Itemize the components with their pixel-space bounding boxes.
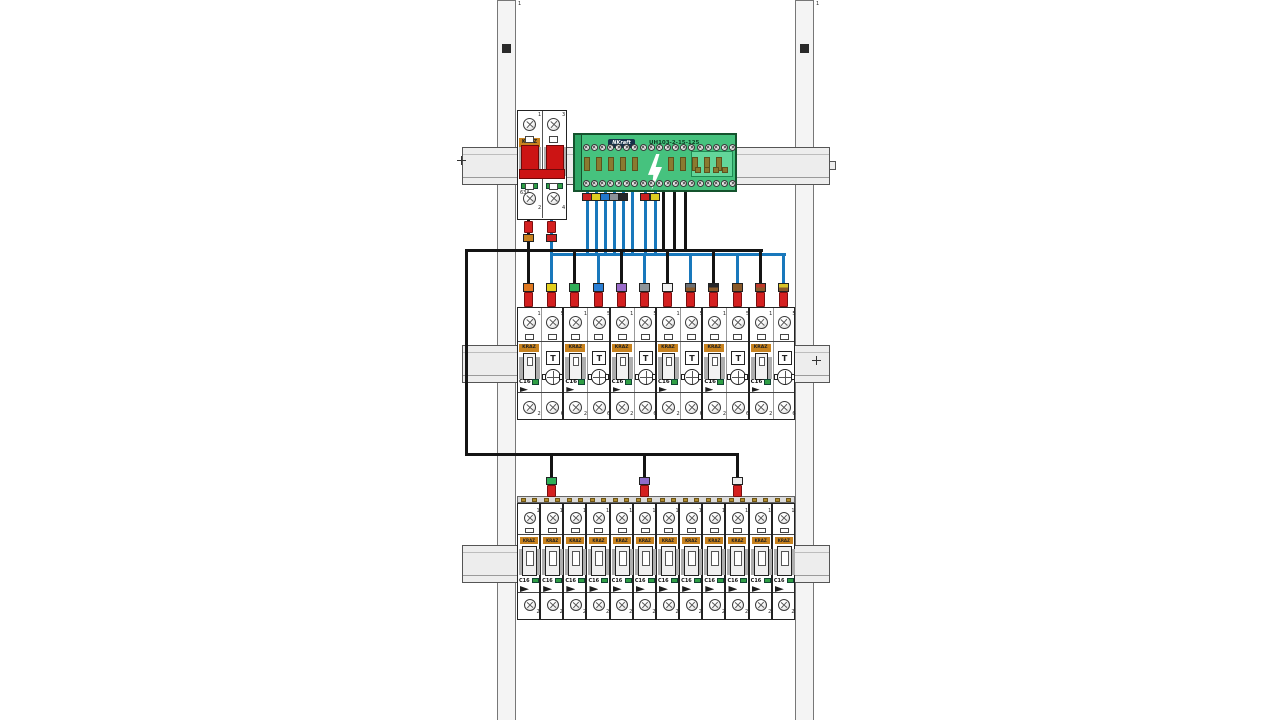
busbar-tooth — [763, 498, 768, 502]
module-divider — [587, 308, 588, 419]
terminal-number: 1 — [723, 312, 729, 318]
terminal-seam — [634, 592, 655, 593]
terminal-number: 1 — [538, 312, 544, 318]
wire-segment — [595, 192, 598, 256]
rcbo-unit: 1526KRAZC16T — [656, 307, 702, 420]
clamp-window — [525, 528, 534, 533]
breaker-toggle-handle[interactable] — [638, 546, 653, 576]
screw-terminal-icon — [547, 512, 559, 524]
wire-segment — [684, 192, 687, 252]
handle-notch — [712, 357, 718, 366]
block-output-tag — [618, 193, 628, 201]
block-clamp-slot — [680, 157, 686, 171]
rcbo-unit: 1526KRAZC16T — [563, 307, 609, 420]
wire-marker-tag — [546, 234, 557, 242]
dial-nub — [791, 374, 795, 380]
breaker-handle-frame — [582, 357, 586, 379]
ferrule-crimp — [640, 292, 649, 307]
test-button[interactable]: T — [685, 351, 699, 365]
screw-terminal-icon — [639, 599, 651, 611]
screw-terminal-icon — [755, 599, 767, 611]
ferrule-crimp — [756, 292, 765, 307]
terminal-seam — [657, 341, 701, 342]
block-clamp-slot — [704, 167, 710, 173]
breaker-toggle-handle[interactable] — [523, 353, 536, 380]
block-screw-terminal-icon — [729, 180, 736, 187]
terminal-number: 1 — [630, 312, 636, 318]
busbar-tooth — [660, 498, 665, 502]
block-screw-terminal-icon — [607, 180, 614, 187]
clamp-window — [710, 528, 719, 533]
mcb-unit: 12KRAZC16 — [679, 503, 702, 620]
terminal-number: 2 — [676, 412, 682, 418]
clamp-window — [548, 334, 557, 340]
block-clamp-slot — [596, 157, 602, 171]
block-screw-terminal-icon — [599, 180, 606, 187]
indicator-window — [717, 379, 724, 385]
brand-logo: KRAZ — [658, 344, 678, 352]
busbar-tooth — [740, 498, 745, 502]
mcb-unit: 12KRAZC16 — [563, 503, 586, 620]
row1-terminal-tag — [778, 283, 789, 292]
busbar-tooth — [671, 498, 676, 502]
mounting-cross-mark — [816, 356, 817, 365]
screw-terminal-icon — [663, 599, 675, 611]
terminal-seam — [634, 534, 655, 535]
rating-label: C16 — [612, 379, 624, 385]
row1-terminal-tag — [593, 283, 604, 292]
test-button[interactable]: T — [778, 351, 792, 365]
terminal-seam — [611, 534, 632, 535]
block-clamp-slot — [608, 157, 614, 171]
test-button[interactable]: T — [731, 351, 745, 365]
breaker-toggle-handle[interactable] — [777, 546, 792, 576]
busbar-tooth — [544, 498, 549, 502]
clamp-window — [664, 528, 673, 533]
block-screw-terminal-icon — [591, 180, 598, 187]
terminal-seam — [657, 392, 701, 393]
block-screw-terminal-icon — [583, 180, 590, 187]
rating-label: C16 — [704, 379, 716, 385]
rating-label: C16 — [565, 578, 577, 584]
wire-segment — [689, 253, 692, 287]
row2-feed-tag — [639, 477, 650, 485]
handle-notch — [711, 551, 719, 566]
terminal-seam — [680, 592, 701, 593]
terminal-seam — [726, 592, 747, 593]
clamp-window — [733, 528, 742, 533]
screw-terminal-icon — [755, 512, 767, 524]
terminal-seam — [703, 592, 724, 593]
brand-logo: KRAZ — [613, 537, 631, 544]
dial-nub — [774, 374, 778, 380]
screw-terminal-icon — [778, 512, 790, 524]
block-screw-terminal-icon — [583, 144, 590, 151]
busbar-tooth — [601, 498, 606, 502]
indicator-window — [601, 578, 608, 583]
clamp-window — [594, 334, 603, 340]
rating-label: C16 — [519, 379, 531, 385]
module-divider — [634, 308, 635, 419]
screw-terminal-icon — [569, 316, 582, 329]
handle-notch — [573, 357, 579, 366]
block-screw-terminal-icon — [713, 144, 720, 151]
block-screw-terminal-icon — [631, 144, 638, 151]
busbar-tooth — [636, 498, 641, 502]
breaker-toggle-handle[interactable] — [754, 546, 769, 576]
terminal-seam — [564, 392, 608, 393]
rail-hole — [800, 44, 809, 53]
block-screw-terminal-icon — [705, 180, 712, 187]
breaker-toggle-handle[interactable] — [661, 546, 676, 576]
ferrule-crimp — [594, 292, 603, 307]
rating-label: C16 — [751, 578, 763, 584]
block-screw-terminal-icon — [680, 180, 687, 187]
breaker-toggle-handle[interactable] — [730, 546, 745, 576]
clamp-window — [549, 183, 558, 190]
busbar-tooth — [683, 498, 688, 502]
busbar-tooth — [555, 498, 560, 502]
rating-label: C16 — [751, 379, 763, 385]
block-screw-terminal-icon — [721, 144, 728, 151]
screw-terminal-icon — [685, 401, 698, 414]
mcb-unit: 12KRAZC16 — [633, 503, 656, 620]
block-screw-terminal-icon — [599, 144, 606, 151]
brand-logo: KRAZ — [566, 537, 584, 544]
panel-layout: 1 1 13241526KRAZC16T1526KRAZC16T1526KRAZ… — [0, 0, 1280, 720]
screw-terminal-icon — [709, 512, 721, 524]
screw-terminal-icon — [732, 599, 744, 611]
clamp-window — [641, 528, 650, 533]
block-screw-terminal-icon — [648, 180, 655, 187]
breaker-handle-frame — [675, 357, 679, 379]
handle-notch — [642, 551, 650, 566]
terminal-seam — [518, 392, 562, 393]
breaker-toggle-handle[interactable] — [708, 353, 721, 380]
screw-terminal-icon — [755, 316, 768, 329]
screw-terminal-icon — [547, 599, 559, 611]
terminal-seam — [541, 534, 562, 535]
clamp-window — [525, 183, 534, 190]
wire-segment — [604, 192, 607, 256]
block-screw-terminal-icon — [672, 180, 679, 187]
block-clamp-slot — [632, 157, 638, 171]
indicator-window — [648, 578, 655, 583]
wire-segment — [622, 192, 625, 256]
indicator-window — [625, 379, 632, 385]
mcb-unit: 12KRAZC16 — [656, 503, 679, 620]
indicator-window — [532, 379, 539, 385]
handle-notch — [665, 551, 673, 566]
wire-segment — [643, 253, 646, 287]
breaker-toggle-handle[interactable] — [707, 546, 722, 576]
block-screw-terminal-icon — [664, 144, 671, 151]
screw-terminal-icon — [547, 192, 560, 205]
dial-nub — [681, 374, 685, 380]
row1-terminal-tag — [732, 283, 743, 292]
block-screw-terminal-icon — [640, 180, 647, 187]
breaker-toggle-handle[interactable] — [522, 546, 537, 576]
indicator-window — [694, 578, 701, 583]
block-screw-terminal-icon — [607, 144, 614, 151]
mcb-unit: 12KRAZC16 — [586, 503, 609, 620]
terminal-seam — [564, 341, 608, 342]
breaker-toggle-handle[interactable] — [569, 353, 582, 380]
brand-logo: KRAZ — [519, 344, 539, 352]
terminal-seam — [611, 341, 655, 342]
handle-notch — [526, 551, 534, 566]
block-screw-terminal-icon — [640, 144, 647, 151]
row1-terminal-tag — [708, 283, 719, 292]
clamp-window — [618, 334, 627, 340]
brand-logo: KRAZ — [612, 344, 632, 352]
screw-terminal-icon — [547, 118, 560, 131]
wire-segment — [654, 192, 657, 256]
terminal-seam — [518, 592, 539, 593]
breaker-toggle-handle[interactable] — [615, 546, 630, 576]
breaker-toggle-handle[interactable] — [545, 546, 560, 576]
breaker-toggle-handle[interactable] — [591, 546, 606, 576]
ferrule-crimp — [524, 292, 533, 307]
module-divider — [541, 308, 542, 419]
screw-terminal-icon — [546, 401, 559, 414]
screw-terminal-icon — [523, 118, 536, 131]
block-clamp-slot — [695, 167, 701, 173]
breaker-handle-frame — [768, 357, 772, 379]
clamp-window — [571, 334, 580, 340]
terminal-number: 2 — [791, 610, 796, 616]
terminal-number: 1 — [538, 113, 544, 119]
block-clamp-slot — [713, 167, 719, 173]
handle-notch — [572, 551, 580, 566]
screw-terminal-icon — [662, 316, 675, 329]
indicator-window — [740, 578, 747, 583]
terminal-seam — [657, 592, 678, 593]
terminal-seam — [703, 534, 724, 535]
row1-terminal-tag — [616, 283, 627, 292]
terminal-number: 2 — [538, 412, 544, 418]
wire-segment — [643, 453, 646, 478]
wire-segment — [782, 253, 785, 287]
handle-notch — [619, 551, 627, 566]
breaker-handle-frame — [721, 357, 725, 379]
clamp-window — [687, 334, 696, 340]
terminal-number: 1 — [769, 312, 775, 318]
dial-nub — [588, 374, 592, 380]
busbar-tooth — [590, 498, 595, 502]
screw-terminal-icon — [732, 316, 745, 329]
terminal-seam — [750, 392, 794, 393]
bus-wire — [465, 249, 763, 252]
test-button[interactable]: T — [592, 351, 606, 365]
indicator-window — [578, 578, 585, 583]
block-screw-terminal-icon — [697, 180, 704, 187]
terminal-number: 3 — [562, 113, 568, 119]
terminal-seam — [773, 592, 794, 593]
mcb-unit: 12KRAZC16 — [610, 503, 633, 620]
screw-terminal-icon — [709, 599, 721, 611]
screw-terminal-icon — [778, 401, 791, 414]
brand-logo: KRAZ — [704, 344, 724, 352]
block-screw-terminal-icon — [656, 144, 663, 151]
clamp-window — [641, 334, 650, 340]
clamp-window — [618, 528, 627, 533]
ferrule-crimp — [617, 292, 626, 307]
block-screw-terminal-icon — [680, 144, 687, 151]
indicator-window — [671, 379, 678, 385]
wire-segment — [712, 249, 715, 287]
handle-notch — [758, 551, 766, 566]
terminal-number: 1 — [676, 312, 682, 318]
wire-segment — [673, 192, 676, 252]
busbar-tooth — [624, 498, 629, 502]
dial-nub — [727, 374, 731, 380]
row1-terminal-tag — [662, 283, 673, 292]
row2-feed-tag — [732, 477, 743, 485]
busbar-tooth — [729, 498, 734, 502]
busbar-tooth — [775, 498, 780, 502]
wire-segment — [550, 453, 553, 478]
brand-logo: KRAZ — [775, 537, 793, 544]
breaker-handle-frame — [629, 357, 633, 379]
terminal-number: 2 — [584, 412, 590, 418]
screw-terminal-icon — [593, 401, 606, 414]
ferrule-crimp — [709, 292, 718, 307]
busbar-tooth — [694, 498, 699, 502]
screw-terminal-icon — [523, 401, 536, 414]
indicator-window — [671, 578, 678, 583]
clamp-window — [664, 334, 673, 340]
rail-hole — [502, 44, 511, 53]
block-screw-terminal-icon — [623, 144, 630, 151]
wire-segment — [620, 249, 623, 287]
terminal-seam — [518, 534, 539, 535]
terminal-seam — [703, 392, 747, 393]
clamp-window — [780, 528, 789, 533]
screw-terminal-icon — [778, 599, 790, 611]
mcb-unit: 12KRAZC16 — [725, 503, 748, 620]
screw-terminal-icon — [639, 512, 651, 524]
terminal-seam — [750, 341, 794, 342]
row2-feed-tag — [546, 477, 557, 485]
terminal-seam — [726, 534, 747, 535]
brand-logo: KRAZ — [659, 537, 677, 544]
terminal-seam — [750, 534, 771, 535]
breaker-handle-frame — [792, 549, 795, 575]
handle-notch — [666, 357, 672, 366]
wire-segment — [613, 192, 616, 256]
clamp-window — [548, 528, 557, 533]
brand-logo: KRAZ — [705, 537, 723, 544]
busbar-tooth — [717, 498, 722, 502]
terminal-seam — [657, 534, 678, 535]
clamp-window — [733, 334, 742, 340]
dial-nub — [635, 374, 639, 380]
row1-terminal-tag — [685, 283, 696, 292]
screw-terminal-icon — [616, 512, 628, 524]
busbar-tooth — [578, 498, 583, 502]
indicator-window — [717, 578, 724, 583]
terminal-number: 4 — [562, 206, 568, 212]
block-screw-terminal-icon — [705, 144, 712, 151]
block-screw-terminal-icon — [648, 144, 655, 151]
rail-label-left: 1 — [518, 2, 521, 7]
block-clamp-slot — [722, 167, 728, 173]
breaker-toggle-handle[interactable] — [684, 546, 699, 576]
screw-terminal-icon — [663, 512, 675, 524]
rating-label: C16 — [612, 578, 624, 584]
brand-logo: KRAZ — [682, 537, 700, 544]
breaker-toggle-handle[interactable] — [616, 353, 629, 380]
ferrule-crimp — [547, 485, 556, 497]
screw-terminal-icon — [708, 316, 721, 329]
rcbo-unit: 1526KRAZC16T — [517, 307, 563, 420]
module-divider — [542, 111, 543, 218]
brand-logo: KRAZ — [589, 537, 607, 544]
brand-logo: KRAZ — [728, 537, 746, 544]
block-clamp-slot — [584, 157, 590, 171]
handle-notch — [734, 551, 742, 566]
test-button[interactable]: T — [546, 351, 560, 365]
block-screw-terminal-icon — [688, 180, 695, 187]
handle-notch — [549, 551, 557, 566]
clamp-window — [594, 528, 603, 533]
screw-terminal-icon — [662, 401, 675, 414]
terminal-seam — [587, 592, 608, 593]
mounting-cross-mark — [461, 156, 462, 165]
breaker-toggle-handle[interactable] — [662, 353, 675, 380]
block-output-tag — [650, 193, 660, 201]
block-screw-terminal-icon — [615, 144, 622, 151]
screw-terminal-icon — [616, 316, 629, 329]
wire-segment — [666, 249, 669, 287]
busbar-tooth — [532, 498, 537, 502]
row1-terminal-tag — [755, 283, 766, 292]
block-screw-terminal-icon — [656, 180, 663, 187]
breaker-toggle-handle[interactable] — [568, 546, 583, 576]
clamp-window — [525, 136, 534, 143]
handle-notch — [527, 357, 533, 366]
block-clamp-slot — [668, 157, 674, 171]
terminal-number: 1 — [791, 509, 796, 515]
block-clamp-slot — [620, 157, 626, 171]
mcb-unit: 12KRAZC16 — [772, 503, 795, 620]
terminal-seam — [587, 534, 608, 535]
dial-nub — [542, 374, 546, 380]
terminal-number: 2 — [630, 412, 636, 418]
wire-segment — [573, 249, 576, 287]
busbar-tooth — [613, 498, 618, 502]
breaker-handle-frame — [536, 357, 540, 379]
indicator-window — [578, 379, 585, 385]
terminal-number: 5 — [792, 312, 798, 318]
block-screw-terminal-icon — [672, 144, 679, 151]
brand-logo: KRAZ — [565, 344, 585, 352]
screw-terminal-icon — [593, 599, 605, 611]
test-button[interactable]: T — [639, 351, 653, 365]
breaker-toggle-handle[interactable] — [755, 353, 768, 380]
screw-terminal-icon — [616, 599, 628, 611]
ferrule-crimp — [733, 292, 742, 307]
ferrule-crimp — [524, 221, 533, 233]
row1-terminal-tag — [523, 283, 534, 292]
block-screw-terminal-icon — [721, 180, 728, 187]
screw-terminal-icon — [570, 512, 582, 524]
din-rail-end-tab — [829, 161, 836, 170]
block-screw-terminal-icon — [631, 180, 638, 187]
block-screw-terminal-icon — [713, 180, 720, 187]
handle-tie-bar[interactable] — [519, 169, 565, 179]
